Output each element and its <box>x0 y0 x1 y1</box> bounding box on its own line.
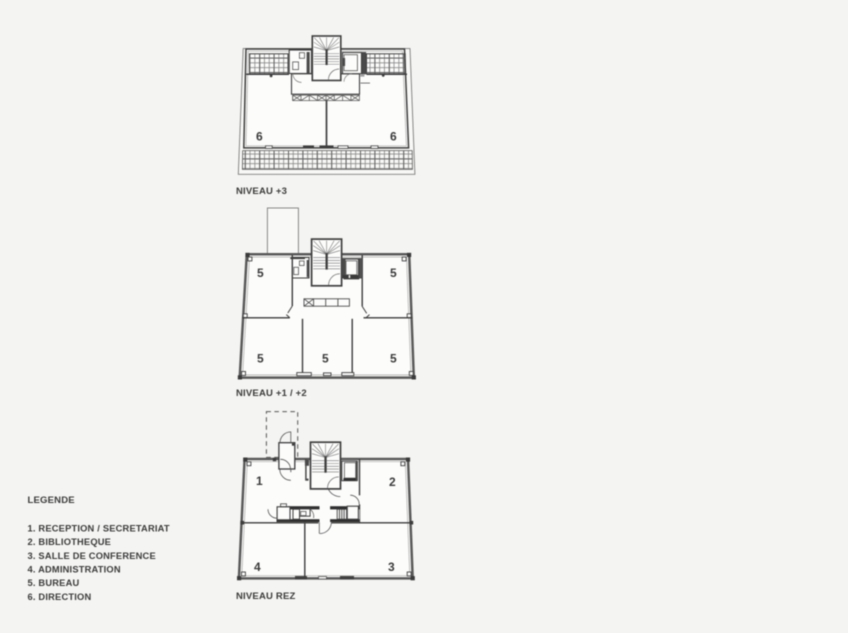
svg-text:3: 3 <box>388 560 395 574</box>
svg-text:1: 1 <box>256 474 263 488</box>
svg-text:2. BIBLIOTHEQUE: 2. BIBLIOTHEQUE <box>28 537 112 547</box>
svg-text:6: 6 <box>390 130 397 144</box>
svg-text:6. DIRECTION: 6. DIRECTION <box>28 592 92 602</box>
svg-text:NIVEAU +3: NIVEAU +3 <box>236 186 287 197</box>
svg-text:1. RECEPTION / SECRETARIAT: 1. RECEPTION / SECRETARIAT <box>28 524 170 534</box>
svg-text:5. BUREAU: 5. BUREAU <box>28 578 80 588</box>
svg-text:3. SALLE DE CONFERENCE: 3. SALLE DE CONFERENCE <box>28 551 156 561</box>
svg-text:2: 2 <box>389 475 396 489</box>
svg-text:5: 5 <box>257 352 264 366</box>
svg-text:4. ADMINISTRATION: 4. ADMINISTRATION <box>28 565 121 575</box>
svg-text:NIVEAU REZ: NIVEAU REZ <box>236 591 296 602</box>
svg-text:5: 5 <box>390 266 397 280</box>
svg-text:5: 5 <box>257 266 264 280</box>
svg-text:LEGENDE: LEGENDE <box>28 495 75 506</box>
svg-text:5: 5 <box>390 352 397 366</box>
svg-text:4: 4 <box>254 560 261 574</box>
svg-text:NIVEAU +1 / +2: NIVEAU +1 / +2 <box>236 388 307 399</box>
svg-text:5: 5 <box>322 352 329 366</box>
svg-text:6: 6 <box>256 130 263 144</box>
